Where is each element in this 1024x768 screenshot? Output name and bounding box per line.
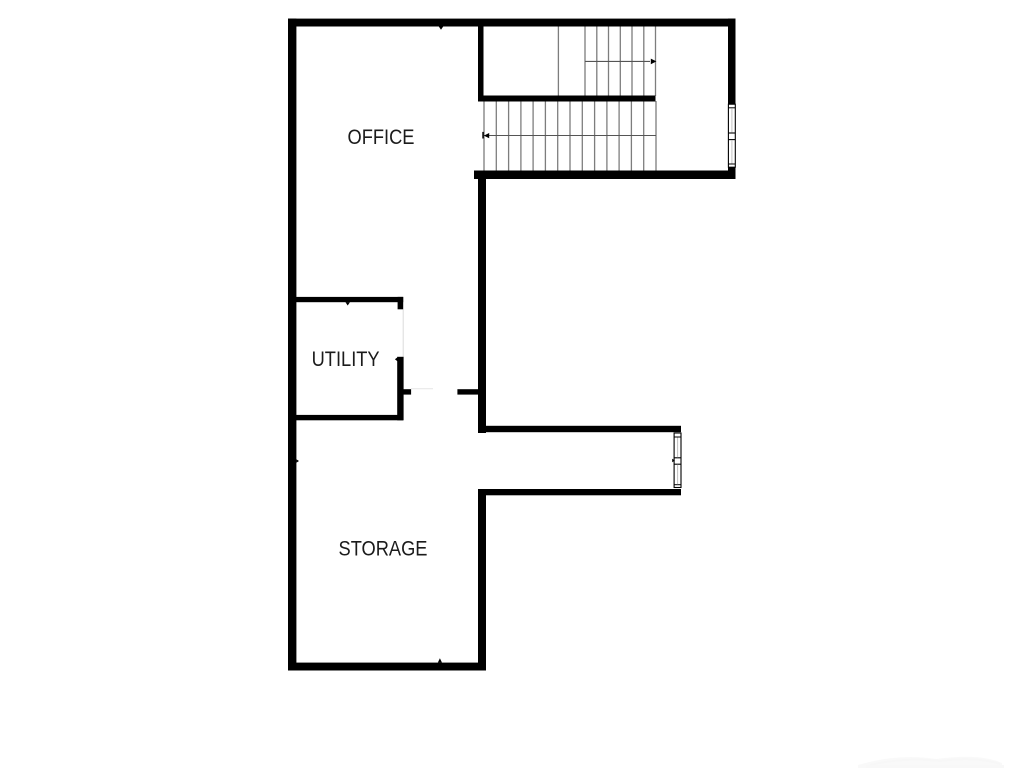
svg-text:STORAGE: STORAGE (339, 537, 428, 560)
svg-text:UTILITY: UTILITY (312, 348, 380, 371)
svg-text:OFFICE: OFFICE (348, 126, 415, 149)
